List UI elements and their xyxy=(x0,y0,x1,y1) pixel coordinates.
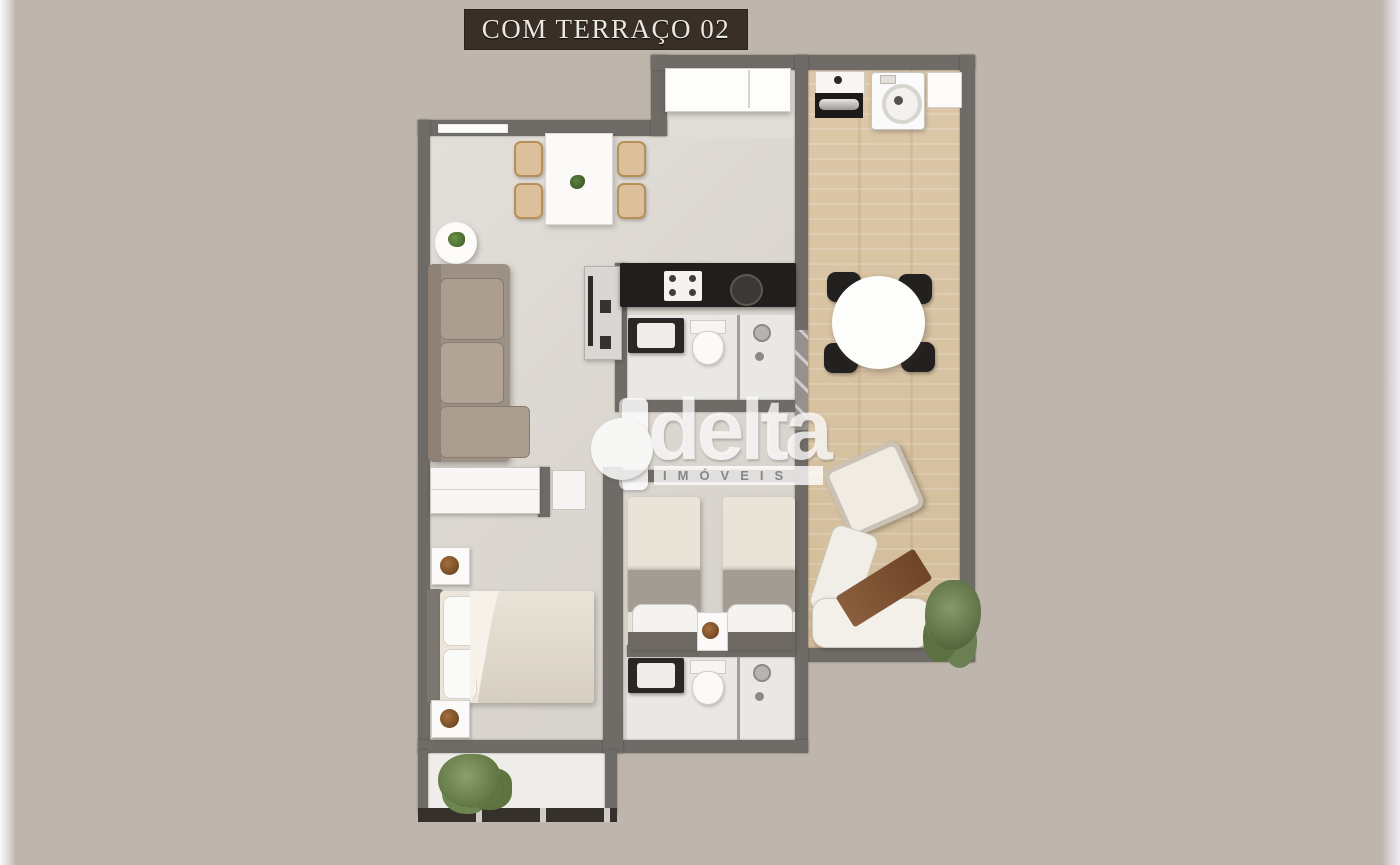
washing-machine-drum xyxy=(882,84,922,124)
washing-machine-center xyxy=(894,96,903,105)
watermark: delta IMÓVEIS xyxy=(560,388,860,498)
bathroom1-shower-head xyxy=(753,324,771,342)
cooktop-burner xyxy=(669,275,676,282)
bathroom1-shower-drain xyxy=(755,352,764,361)
bathroom1-sink xyxy=(637,323,675,348)
window-top xyxy=(438,124,508,133)
grill-roll xyxy=(819,99,859,110)
bedroom1-wardrobe-divider xyxy=(430,489,538,490)
watermark-sub-text: IMÓVEIS xyxy=(654,466,823,485)
kitchen-sink xyxy=(730,274,763,306)
grill-knob xyxy=(834,76,842,84)
terrace-counter xyxy=(927,72,962,108)
bathroom1-toilet xyxy=(692,331,724,365)
dining-chair xyxy=(514,141,543,177)
dining-chair xyxy=(617,141,646,177)
kitchen-cabinet-divider xyxy=(748,70,750,108)
balcony-wall-left xyxy=(418,750,428,814)
washing-machine-drawer xyxy=(880,75,896,84)
side-table-plant xyxy=(448,232,465,247)
bedroom2-headboard xyxy=(628,632,700,650)
cooktop-burner xyxy=(689,289,696,296)
bathroom2-sink xyxy=(637,663,675,688)
balcony-wall-right xyxy=(605,750,617,814)
nightstand-decor xyxy=(440,556,459,575)
watermark-brand-text: delta xyxy=(648,380,829,480)
sofa-chaise xyxy=(440,406,530,458)
balcony-railing xyxy=(418,808,617,822)
tv-rack-drawer xyxy=(600,336,611,349)
nightstand-decor xyxy=(440,709,459,728)
sofa-back xyxy=(428,264,441,462)
balcony-plant xyxy=(438,754,500,808)
kitchen-counter xyxy=(620,263,796,307)
terrace-round-table xyxy=(832,276,925,369)
wall-terrace-bottom xyxy=(795,648,975,662)
cooktop-burner xyxy=(669,289,676,296)
watermark-logo-circle xyxy=(591,418,653,480)
sofa-cushion xyxy=(440,278,504,340)
nightstand-decor xyxy=(702,622,719,639)
page-edge-gradient-left xyxy=(0,0,16,865)
page-edge-gradient-right xyxy=(1382,0,1400,865)
wall-bedroom-divider xyxy=(603,467,623,753)
bedroom1-wardrobe xyxy=(430,467,540,514)
bathroom2-toilet xyxy=(692,671,724,705)
bedroom2-headboard xyxy=(723,632,795,650)
cooktop-burner xyxy=(689,275,696,282)
floor-plan-image: COM TERRAÇO 02 xyxy=(0,0,1400,865)
dining-chair xyxy=(617,183,646,219)
tv-screen xyxy=(588,276,593,346)
kitchen-cabinet xyxy=(665,68,791,112)
sofa-cushion xyxy=(440,342,504,404)
bedroom1-sheet-fold xyxy=(470,591,504,703)
bathroom2-shower-head xyxy=(753,664,771,682)
tv-rack-drawer xyxy=(600,300,611,313)
bathroom2-shower-drain xyxy=(755,692,764,701)
dining-chair xyxy=(514,183,543,219)
bathroom2-shower-partition xyxy=(737,657,740,740)
wall-terrace-right xyxy=(960,55,975,662)
plan-title-banner: COM TERRAÇO 02 xyxy=(464,9,748,50)
